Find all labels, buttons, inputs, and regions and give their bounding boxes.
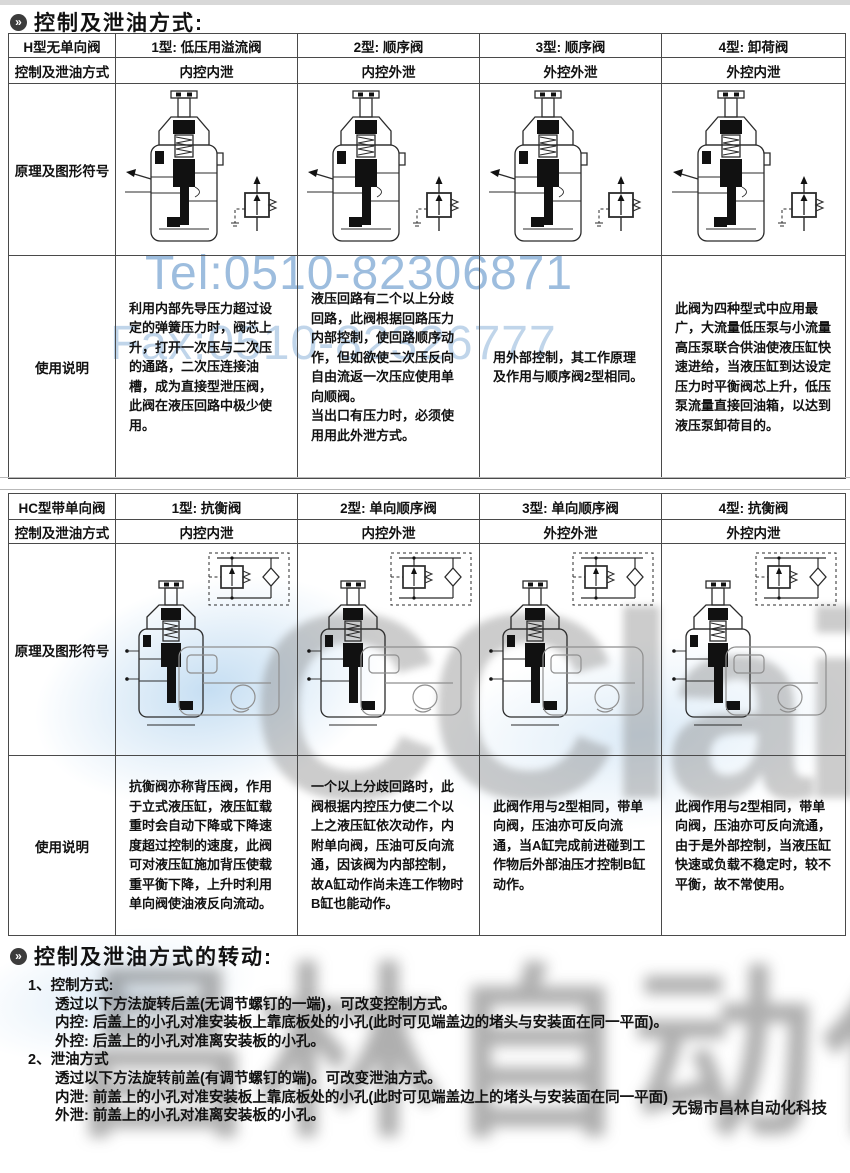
relief-valve-symbol (231, 176, 276, 231)
cell-hc-usage1: 抗衡阀亦称背压阀，作用于立式液压缸，液压缸载重时会自动下降或下降速度超过控制的速… (116, 756, 298, 936)
cell-hc-usage3: 此阀作用与2型相同，带单向阀，压油亦可反向流通，当A缸完成前进碰到工作物后外部油… (480, 756, 662, 936)
cell-h-type4: 4型: 卸荷阀 (662, 34, 846, 58)
bullet-icon: » (10, 14, 27, 31)
cell-hc-type2: 2型: 单向顺序阀 (298, 494, 480, 520)
mounting-plate-schematic (726, 647, 826, 715)
top-edge-strip (0, 0, 850, 5)
cell-h-usage4: 此阀为四种型式中应用最广，大流量低压泵与小流量高压泵联合供油使液压缸快速进给，当… (662, 256, 846, 479)
valve-cross-section-hc (303, 551, 475, 749)
cell-h-usage2: 液压回路有二个以上分歧回路，此阀根据回路压力内部控制，使回路顺序动作，但如欲使二… (298, 256, 480, 479)
cell-hc-control2: 内控外泄 (298, 520, 480, 544)
cell-hc-control3: 外控外泄 (480, 520, 662, 544)
diagram-hc-type2 (299, 551, 478, 749)
diagram-h-type4 (663, 89, 844, 251)
cell-hc-usage2: 一个以上分歧回路时，此阀根据内控压力使二个以上之液压缸依次动作，内附单向阀，压油… (298, 756, 480, 936)
cell-h-usage-label: 使用说明 (9, 256, 116, 479)
hc-diagram-row: 原理及图形符号 (9, 544, 846, 756)
h-control-row: 控制及泄油方式 内控内泄 内控外泄 外控外泄 外控内泄 (9, 58, 846, 84)
counterbalance-symbol (573, 553, 653, 605)
note-line: 透过以下方法旋转前盖(有调节螺钉的端)。可改变泄油方式。 (55, 1070, 828, 1089)
diagram-h-type3 (481, 89, 660, 251)
relief-valve-symbol (778, 176, 823, 231)
cell-h-diagram4 (662, 84, 846, 256)
h-type-header-row: H型无单向阀 1型: 低压用溢流阀 2型: 顺序阀 3型: 顺序阀 4型: 卸荷… (9, 34, 846, 58)
company-name: 无锡市昌林自动化科技 (672, 1096, 827, 1118)
cell-h-control-label: 控制及泄油方式 (9, 58, 116, 84)
h-type-table: H型无单向阀 1型: 低压用溢流阀 2型: 顺序阀 3型: 顺序阀 4型: 卸荷… (8, 33, 846, 479)
cell-hc-type1: 1型: 抗衡阀 (116, 494, 298, 520)
hc-type-table: HC型带单向阀 1型: 抗衡阀 2型: 单向顺序阀 3型: 单向顺序阀 4型: … (8, 493, 846, 936)
mounting-plate-schematic (179, 647, 279, 715)
counterbalance-symbol (391, 553, 471, 605)
cell-h-diagram-label: 原理及图形符号 (9, 84, 116, 256)
cell-h-control2: 内控外泄 (298, 58, 480, 84)
cell-h-diagram1 (116, 84, 298, 256)
cell-h-usage3: 用外部控制，其工作原理及作用与顺序阀2型相同。 (480, 256, 662, 479)
relief-valve-symbol (413, 176, 458, 231)
section2-title-text: 控制及泄油方式的转动: (34, 941, 273, 971)
counterbalance-symbol (756, 553, 836, 605)
diagram-h-type1 (117, 89, 296, 251)
cell-h-diagram2 (298, 84, 480, 256)
cell-hc-diagram-label: 原理及图形符号 (9, 544, 116, 756)
cell-hc-diagram1 (116, 544, 298, 756)
cell-hc-usage-label: 使用说明 (9, 756, 116, 936)
table-separator-band (0, 477, 850, 490)
hc-control-row: 控制及泄油方式 内控内泄 内控外泄 外控外泄 外控内泄 (9, 520, 846, 544)
note-line: 透过以下方法旋转后盖(无调节螺钉的一端)，可改变控制方式。 (55, 996, 828, 1015)
cell-h-control3: 外控外泄 (480, 58, 662, 84)
catalog-page: { "header": { "bullet": "»", "section1_t… (0, 0, 850, 1131)
cell-h-control1: 内控内泄 (116, 58, 298, 84)
diagram-hc-type1 (117, 551, 296, 749)
h-usage-row: 使用说明 利用内部先导压力超过设定的弹簧压力时，阀芯上升，打开一次压与二次压的通… (9, 256, 846, 479)
valve-cross-section-h (487, 89, 655, 251)
diagram-hc-type4 (663, 551, 844, 749)
valve-cross-section-hc (668, 551, 840, 749)
section2-title: » 控制及泄油方式的转动: (10, 941, 273, 971)
mounting-plate-schematic (543, 647, 643, 715)
cell-h-type1: 1型: 低压用溢流阀 (116, 34, 298, 58)
cell-hc-diagram3 (480, 544, 662, 756)
valve-cross-section-hc (485, 551, 657, 749)
cell-hc-type4: 4型: 抗衡阀 (662, 494, 846, 520)
note-line: 内控: 后盖上的小孔对准安装板上靠底板处的小孔(此时可见端盖边的堵头与安装面在同… (55, 1014, 828, 1033)
bullet-icon: » (10, 948, 27, 965)
cell-hc-usage4: 此阀作用与2型相同，带单向阀，压油亦可反向流通，由于是外部控制，当液压缸快速或负… (662, 756, 846, 936)
valve-cross-section-hc (121, 551, 293, 749)
cell-hc-diagram4 (662, 544, 846, 756)
cell-h-type3: 3型: 顺序阀 (480, 34, 662, 58)
cell-hc-control1: 内控内泄 (116, 520, 298, 544)
valve-cross-section-h (305, 89, 473, 251)
note-line: 1、控制方式: (28, 977, 828, 996)
cell-h-diagram3 (480, 84, 662, 256)
page-content: » 控制及泄油方式: H型无单向阀 1型: 低压用溢流阀 2型: 顺序阀 3型:… (0, 0, 850, 1131)
cell-hc-control-label: 控制及泄油方式 (9, 520, 116, 544)
relief-valve-symbol (595, 176, 640, 231)
note-line: 2、泄油方式 (28, 1051, 828, 1070)
diagram-h-type2 (299, 89, 478, 251)
cell-h-series: H型无单向阀 (9, 34, 116, 58)
hc-type-header-row: HC型带单向阀 1型: 抗衡阀 2型: 单向顺序阀 3型: 单向顺序阀 4型: … (9, 494, 846, 520)
cell-h-type2: 2型: 顺序阀 (298, 34, 480, 58)
diagram-hc-type3 (481, 551, 660, 749)
cell-hc-type3: 3型: 单向顺序阀 (480, 494, 662, 520)
cell-hc-series: HC型带单向阀 (9, 494, 116, 520)
cell-h-usage1: 利用内部先导压力超过设定的弹簧压力时，阀芯上升，打开一次压与二次压的通路，二次压… (116, 256, 298, 479)
cell-h-control4: 外控内泄 (662, 58, 846, 84)
cell-hc-control4: 外控内泄 (662, 520, 846, 544)
counterbalance-symbol (209, 553, 289, 605)
valve-cross-section-h (123, 89, 291, 251)
hc-usage-row: 使用说明 抗衡阀亦称背压阀，作用于立式液压缸，液压缸载重时会自动下降或下降速度超… (9, 756, 846, 936)
valve-cross-section-h (670, 89, 838, 251)
cell-hc-diagram2 (298, 544, 480, 756)
h-diagram-row: 原理及图形符号 (9, 84, 846, 256)
note-line: 外控: 后盖上的小孔对准离安装板的小孔。 (55, 1033, 828, 1052)
mounting-plate-schematic (361, 647, 461, 715)
